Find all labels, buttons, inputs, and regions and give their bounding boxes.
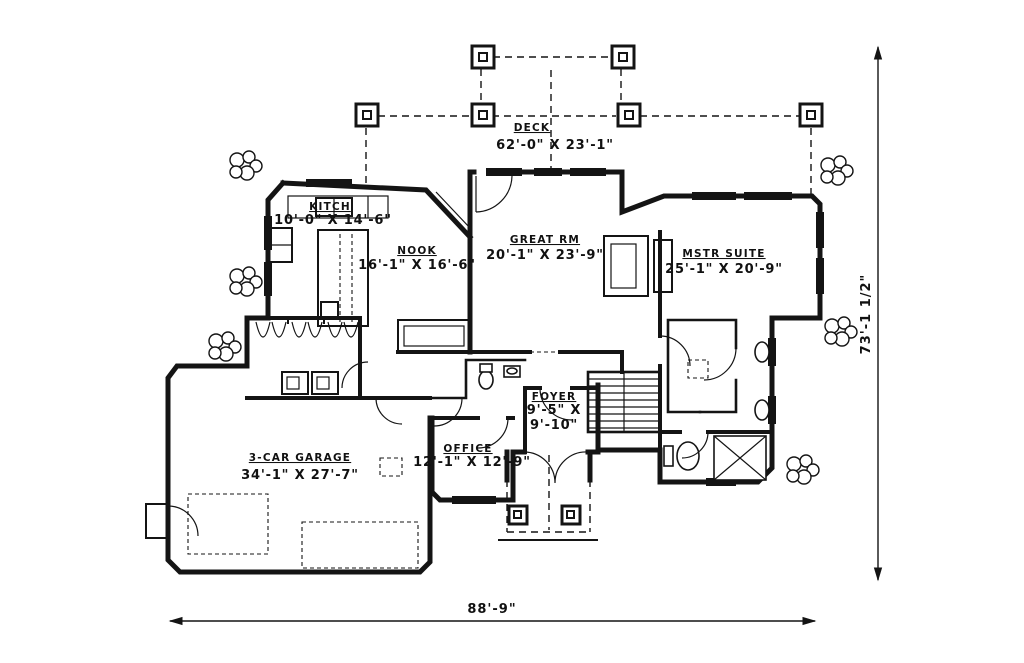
floor-plan-sheet: 88'-9" 73'-1 1/2" DECK 62'-0" X 23'-1" K… — [0, 0, 1024, 663]
hall-closets — [256, 318, 358, 337]
great-room-label: GREAT RM — [510, 234, 580, 246]
master-suite-dims: 25'-1" X 20'-9" — [665, 262, 783, 277]
nook-dims: 16'-1" X 16'-6" — [358, 258, 476, 273]
great-room-dims: 20'-1" X 23'-9" — [486, 248, 604, 263]
office-label: OFFICE — [443, 443, 492, 455]
stoop — [146, 504, 168, 538]
overall-width-label: 88'-9" — [467, 602, 516, 617]
foyer-dims-2: 9'-10" — [530, 418, 578, 433]
column-post — [618, 104, 640, 126]
deck-label: DECK — [514, 122, 551, 134]
shrub — [230, 151, 262, 180]
tub — [714, 436, 766, 480]
shrub — [825, 317, 857, 346]
office-dims: 12'-1" X 12'-9" — [413, 455, 531, 470]
shrub — [209, 332, 241, 361]
column-post — [800, 104, 822, 126]
deck-posts — [356, 46, 822, 126]
sink — [504, 366, 520, 377]
laundry — [282, 372, 338, 394]
hall-door-arc — [434, 398, 462, 426]
porch-post — [562, 506, 580, 524]
column-post — [472, 104, 494, 126]
deck-door-arc — [476, 176, 512, 212]
attic-access — [380, 458, 402, 476]
window-seat — [398, 320, 470, 352]
porch-post — [509, 506, 527, 524]
nook-label: NOOK — [397, 245, 437, 257]
dryer — [312, 372, 338, 394]
foyer-label: FOYER — [532, 391, 577, 403]
bifold-doors — [256, 322, 358, 337]
mud-door-arc — [342, 362, 368, 388]
master-door-arc — [660, 336, 690, 366]
garage-label: 3-CAR GARAGE — [249, 452, 351, 464]
shrub — [821, 156, 853, 185]
front-double-door-arcs — [524, 452, 588, 483]
master-suite-label: MSTR SUITE — [682, 248, 765, 260]
floor-plan-drawing: 88'-9" 73'-1 1/2" DECK 62'-0" X 23'-1" K… — [0, 0, 1024, 663]
sink — [755, 400, 769, 420]
walk-in-closet — [668, 320, 736, 412]
closet-door-arc — [704, 348, 736, 380]
side-door-arc — [168, 506, 198, 536]
washer — [282, 372, 308, 394]
foyer-dims-1: 9'-5" X — [527, 403, 581, 418]
deck-dims: 62'-0" X 23'-1" — [496, 138, 614, 153]
dimension-line-bottom: 88'-9" — [170, 602, 815, 621]
powder-room — [479, 364, 520, 389]
garage-dims: 34'-1" X 27'-7" — [241, 468, 359, 483]
column-post — [472, 46, 494, 68]
kitchen-island — [318, 230, 368, 326]
sink — [755, 342, 769, 362]
column-post — [612, 46, 634, 68]
overall-height-label: 73'-1 1/2" — [859, 274, 874, 355]
column-post — [356, 104, 378, 126]
toilet — [664, 442, 699, 470]
garage-entry-door-arc — [376, 398, 402, 424]
shrub — [230, 267, 262, 296]
shrub — [787, 455, 819, 484]
dimension-line-right: 73'-1 1/2" — [859, 47, 878, 580]
kitchen-label: KITCH — [309, 201, 351, 213]
kitchen-dims: 10'-0" X 14'-6" — [274, 213, 392, 228]
toilet — [479, 364, 493, 389]
